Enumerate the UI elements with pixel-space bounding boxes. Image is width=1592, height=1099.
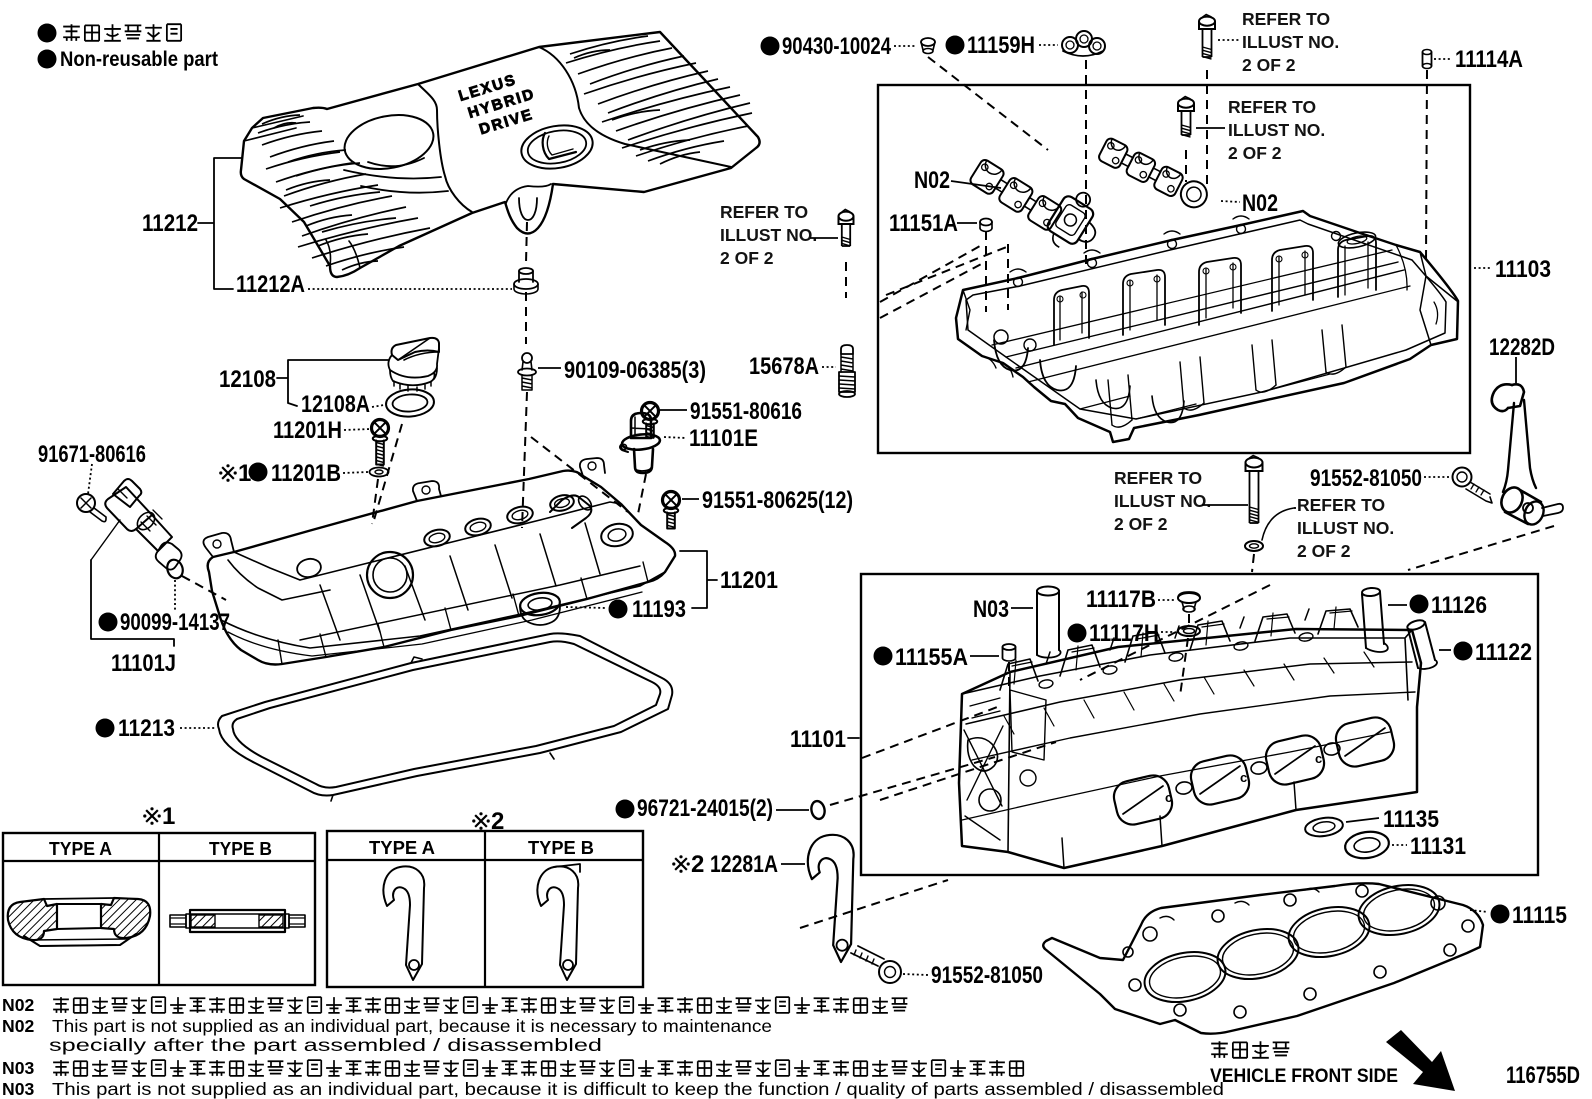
svg-text:11126: 11126 — [1431, 592, 1487, 619]
svg-text:11201: 11201 — [720, 567, 778, 594]
svg-text:TYPE A: TYPE A — [49, 838, 112, 859]
svg-text:12281A: 12281A — [710, 851, 778, 878]
svg-text:ILLUST NO.: ILLUST NO. — [1228, 120, 1325, 140]
svg-text:91552-81050: 91552-81050 — [1310, 465, 1422, 492]
svg-text:c: c — [1240, 770, 1247, 785]
svg-text:91671-80616: 91671-80616 — [38, 441, 146, 468]
svg-text:12282D: 12282D — [1489, 334, 1555, 361]
svg-text:VEHICLE FRONT SIDE: VEHICLE FRONT SIDE — [1210, 1066, 1398, 1087]
svg-text:This part is not supplied as a: This part is not supplied as an individu… — [52, 1079, 1224, 1099]
svg-text:2: 2 — [691, 851, 704, 878]
svg-text:90099-14137: 90099-14137 — [120, 609, 230, 636]
svg-text:11151A: 11151A — [889, 210, 958, 237]
svg-text:N02: N02 — [2, 995, 34, 1015]
svg-text:11115: 11115 — [1512, 902, 1567, 929]
svg-text:2 OF 2: 2 OF 2 — [720, 248, 774, 268]
svg-text:11101J: 11101J — [111, 650, 176, 677]
svg-text:11201B: 11201B — [271, 460, 341, 487]
svg-text:This part is not supplied as a: This part is not supplied as an individu… — [52, 1016, 772, 1036]
svg-text:ILLUST NO.: ILLUST NO. — [1114, 491, 1211, 511]
svg-text:REFER TO: REFER TO — [1114, 468, 1202, 488]
svg-text:11101: 11101 — [790, 726, 846, 753]
svg-text:2 OF 2: 2 OF 2 — [1228, 143, 1282, 163]
svg-text:11131: 11131 — [1410, 833, 1466, 860]
svg-text:ILLUST NO.: ILLUST NO. — [720, 225, 817, 245]
svg-text:11212: 11212 — [142, 210, 198, 237]
svg-text:REFER TO: REFER TO — [1242, 9, 1330, 29]
svg-text:TYPE B: TYPE B — [209, 838, 272, 859]
svg-text:11213: 11213 — [118, 715, 175, 742]
svg-text:N02: N02 — [2, 1016, 34, 1036]
svg-text:90430-10024: 90430-10024 — [782, 33, 892, 60]
svg-text:specially after the part assem: specially after the part assembled / dis… — [49, 1035, 602, 1055]
svg-text:11101E: 11101E — [689, 425, 758, 452]
svg-text:N03: N03 — [2, 1079, 34, 1099]
svg-text:ILLUST NO.: ILLUST NO. — [1242, 32, 1339, 52]
svg-text:12108A: 12108A — [301, 391, 370, 418]
svg-text:15678A: 15678A — [749, 353, 819, 380]
svg-text:1: 1 — [162, 803, 175, 830]
svg-text:2 OF 2: 2 OF 2 — [1297, 541, 1351, 561]
svg-text:11212A: 11212A — [236, 271, 305, 298]
svg-text:11201H: 11201H — [273, 417, 342, 444]
svg-text:91552-81050: 91552-81050 — [931, 962, 1043, 989]
svg-text:N03: N03 — [973, 596, 1009, 623]
svg-text:REFER TO: REFER TO — [1297, 495, 1385, 515]
svg-text:11114A: 11114A — [1455, 46, 1523, 73]
svg-text:91551-80625(12): 91551-80625(12) — [702, 487, 853, 514]
svg-text:11103: 11103 — [1495, 256, 1551, 283]
svg-text:N02: N02 — [914, 167, 950, 194]
svg-text:11135: 11135 — [1383, 806, 1439, 833]
svg-text:ILLUST NO.: ILLUST NO. — [1297, 518, 1394, 538]
svg-text:N02: N02 — [1242, 190, 1278, 217]
svg-text:11193: 11193 — [632, 596, 686, 623]
svg-text:TYPE A: TYPE A — [369, 837, 435, 858]
svg-text:TYPE B: TYPE B — [528, 837, 594, 858]
svg-text:11117B: 11117B — [1086, 586, 1156, 613]
svg-text:Non-reusable part: Non-reusable part — [60, 48, 218, 71]
svg-text:12108: 12108 — [219, 366, 276, 393]
svg-text:11155A: 11155A — [895, 644, 968, 671]
svg-text:90109-06385(3): 90109-06385(3) — [564, 357, 706, 384]
svg-text:REFER TO: REFER TO — [1228, 97, 1316, 117]
svg-text:c: c — [1315, 751, 1322, 766]
svg-text:2 OF 2: 2 OF 2 — [1242, 55, 1296, 75]
svg-text:116755D: 116755D — [1506, 1062, 1580, 1089]
svg-text:96721-24015(2): 96721-24015(2) — [637, 795, 773, 822]
svg-text:11159H: 11159H — [967, 32, 1035, 59]
svg-text:91551-80616: 91551-80616 — [690, 398, 802, 425]
svg-text:11122: 11122 — [1475, 639, 1532, 666]
svg-text:c: c — [1165, 790, 1172, 805]
svg-text:2 OF 2: 2 OF 2 — [1114, 514, 1168, 534]
svg-text:REFER TO: REFER TO — [720, 202, 808, 222]
svg-text:N03: N03 — [2, 1058, 34, 1078]
